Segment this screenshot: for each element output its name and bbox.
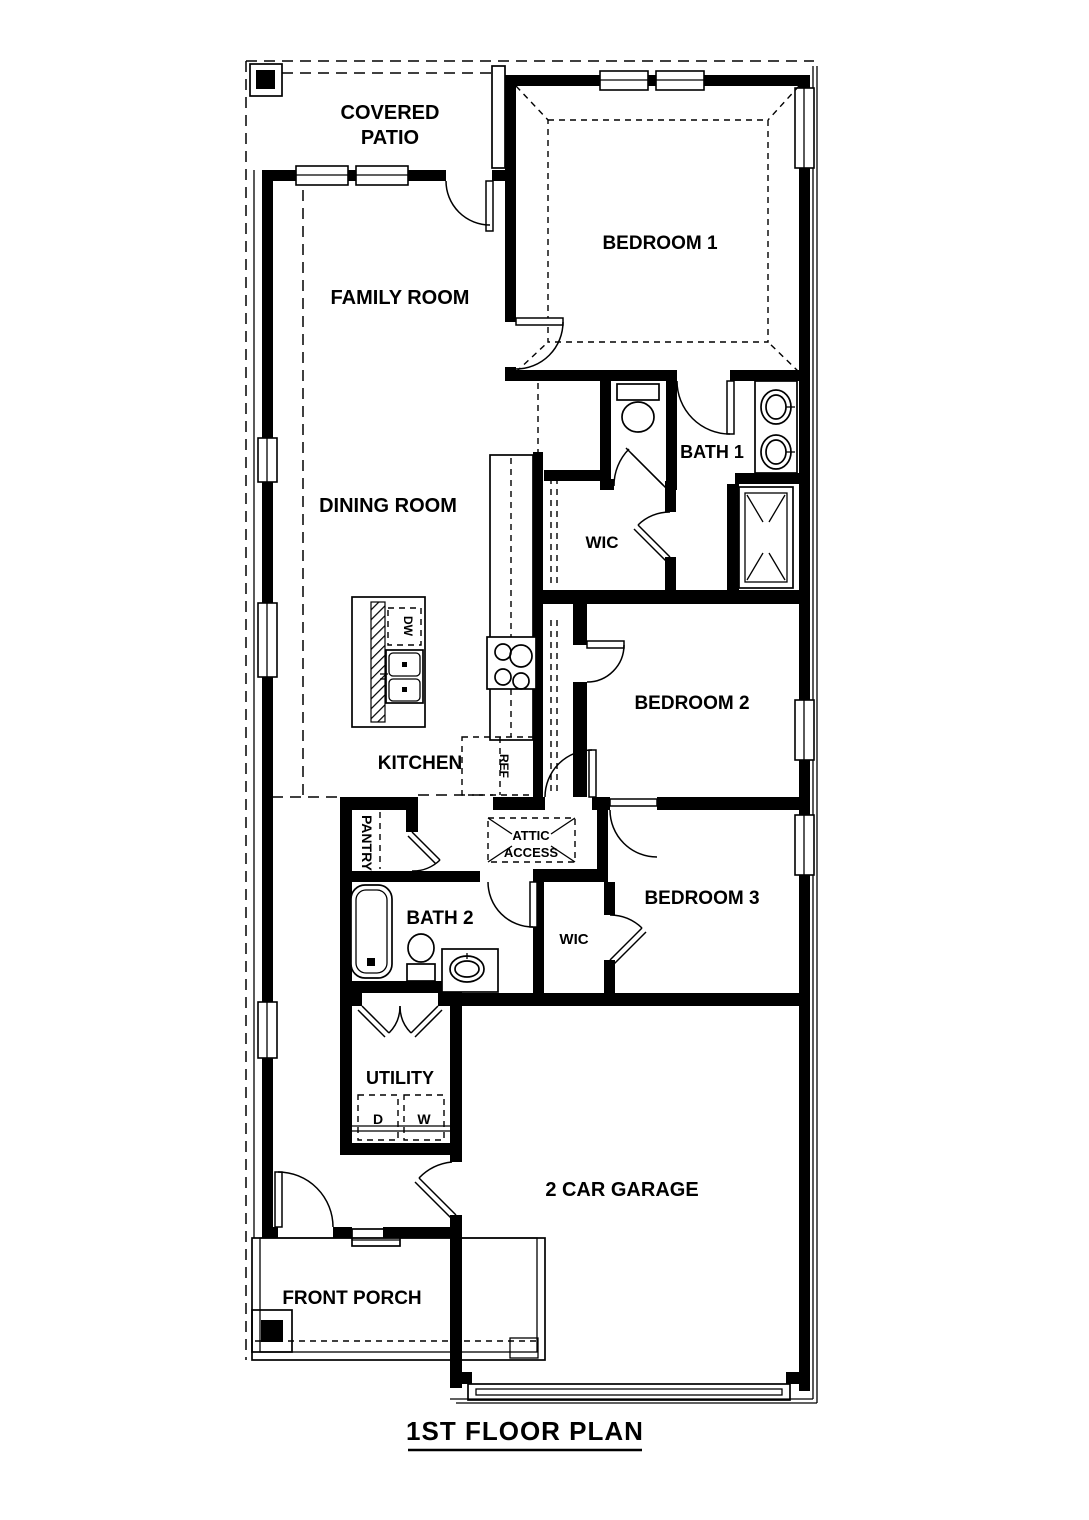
bath2-fixtures <box>351 885 498 992</box>
kitchen-label: KITCHEN <box>378 753 462 774</box>
wic1-label: WIC <box>585 533 618 552</box>
utility-fixtures <box>352 1095 450 1140</box>
bathtub-fixture <box>351 885 392 978</box>
refrigerator-label: REF <box>497 754 511 778</box>
room-labels: COVERED PATIO FAMILY ROOM BEDROOM 1 BATH… <box>282 102 759 1309</box>
toilet2-fixture <box>407 934 435 981</box>
bath2-door <box>488 882 537 927</box>
garage-label: 2 CAR GARAGE <box>545 1179 698 1201</box>
attic-access-label-1: ATTIC <box>512 828 550 843</box>
dryer-label: D <box>373 1111 383 1127</box>
front-porch-label: FRONT PORCH <box>282 1288 421 1309</box>
tray-ceiling-dashed <box>516 86 799 372</box>
garage-entry-door <box>415 1162 456 1219</box>
bath2-label: BATH 2 <box>406 908 473 929</box>
front-door <box>275 1172 333 1227</box>
family-room-label: FAMILY ROOM <box>331 287 470 309</box>
patio-door <box>446 181 493 231</box>
roof-overhang-lines <box>246 61 817 1403</box>
covered-patio-label-1: COVERED <box>341 102 440 124</box>
garage-door <box>468 1384 790 1400</box>
page-title: 1ST FLOOR PLAN <box>406 1416 644 1446</box>
double-vanity-fixture <box>755 381 797 473</box>
wic1-door <box>634 512 670 561</box>
floor-plan-page: COVERED PATIO FAMILY ROOM BEDROOM 1 BATH… <box>0 0 1089 1520</box>
wic2-door <box>610 915 646 964</box>
dining-room-label: DINING ROOM <box>319 495 457 517</box>
plan-title: 1ST FLOOR PLAN <box>406 1416 644 1450</box>
bedroom1-door <box>516 318 563 369</box>
covered-patio-label-2: PATIO <box>361 127 419 149</box>
island-sink <box>380 650 423 703</box>
bedroom1-label: BEDROOM 1 <box>602 233 718 254</box>
bath1-fixtures <box>617 381 797 588</box>
bedroom2-label: BEDROOM 2 <box>634 693 749 714</box>
vanity2-fixture <box>442 949 498 992</box>
bedroom2-closet-door <box>587 641 624 682</box>
floor-plan-drawing: COVERED PATIO FAMILY ROOM BEDROOM 1 BATH… <box>0 0 1089 1520</box>
pantry-door <box>408 832 440 871</box>
attic-access-label-2: ACCESS <box>504 845 559 860</box>
bedroom3-door <box>610 799 657 857</box>
utility-label: UTILITY <box>366 1068 434 1088</box>
dishwasher-label: DW <box>401 616 415 637</box>
wic2-label: WIC <box>559 931 588 948</box>
shower-fixture <box>739 487 793 588</box>
bedroom3-label: BEDROOM 3 <box>644 888 759 909</box>
utility-double-doors <box>358 1006 442 1037</box>
washer-label: W <box>417 1111 431 1127</box>
toilet-room-door <box>614 448 668 490</box>
pantry-label: PANTRY <box>359 815 375 872</box>
bath1-label: BATH 1 <box>680 442 744 462</box>
cooktop-fixture <box>487 637 536 689</box>
walls <box>262 75 810 1391</box>
bedroom2-door <box>545 750 596 797</box>
toilet-fixture <box>617 384 659 432</box>
kitchen-counter <box>490 455 533 740</box>
dashed-reference-lines <box>272 190 538 797</box>
bath1-door <box>677 381 734 434</box>
